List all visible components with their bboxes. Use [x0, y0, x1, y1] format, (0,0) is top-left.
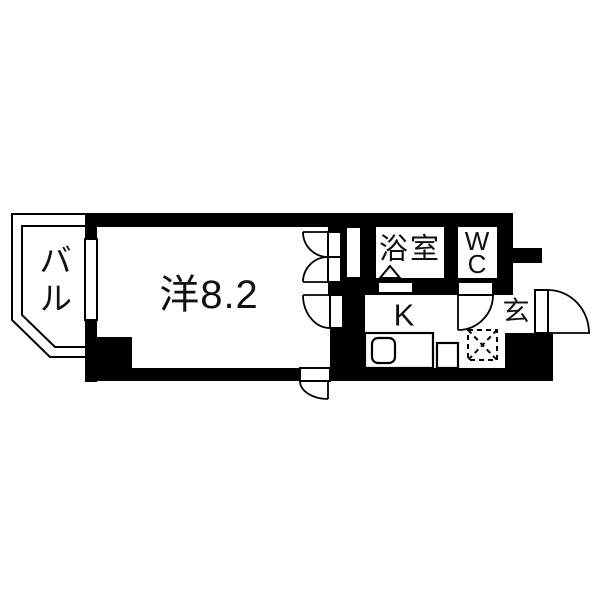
closet-door-panel-lower [328, 257, 341, 282]
toilet-label: WC [462, 230, 492, 276]
entrance-door-panel [535, 290, 548, 333]
kitchen-fixtures [365, 333, 458, 368]
floorplan-canvas: バル 洋8.2 浴室 WC K 玄 [0, 0, 600, 600]
wall-bottom-right-block [505, 333, 553, 368]
wall-step-bottom-left [97, 337, 132, 368]
closet-door-arcs [303, 232, 328, 282]
balcony-window [85, 239, 97, 320]
bottom-door-threshold [300, 368, 330, 381]
kitchen-label: K [394, 300, 415, 331]
western-room-label: 洋8.2 [159, 275, 259, 315]
bathroom-door-triangle-icon [380, 266, 400, 278]
wall-top-right-stub [513, 248, 542, 263]
wc-door-threshold [458, 282, 493, 295]
kitchen-stove [437, 343, 458, 368]
wall-below-closet [328, 282, 346, 295]
room-door-arc [303, 295, 330, 328]
entrance-door-arc [548, 290, 590, 333]
wall-chase-upper [343, 295, 365, 328]
bathroom-label: 浴室 [379, 236, 441, 265]
refrigerator-space [468, 330, 497, 360]
closet-door-panel-upper [328, 232, 341, 257]
bottom-door-arc [300, 381, 328, 399]
wall-top [85, 213, 513, 227]
kitchen-sink [372, 338, 395, 363]
room-door-opening [330, 295, 343, 328]
pipe-space [347, 228, 360, 277]
closet-door-upper-arc [303, 232, 328, 257]
closet-doors [328, 232, 341, 282]
refrigerator-cross-icon [468, 330, 497, 360]
wall-bath-wc-divider [444, 227, 458, 278]
balcony-label: バル [37, 243, 70, 319]
closet-door-lower-arc [303, 257, 328, 282]
wc-door-arc [458, 295, 493, 330]
wall-right-of-wc [497, 227, 513, 295]
wall-chase-lower [330, 328, 365, 368]
bathroom-door-threshold [378, 282, 413, 293]
entrance-label: 玄 [503, 299, 530, 326]
